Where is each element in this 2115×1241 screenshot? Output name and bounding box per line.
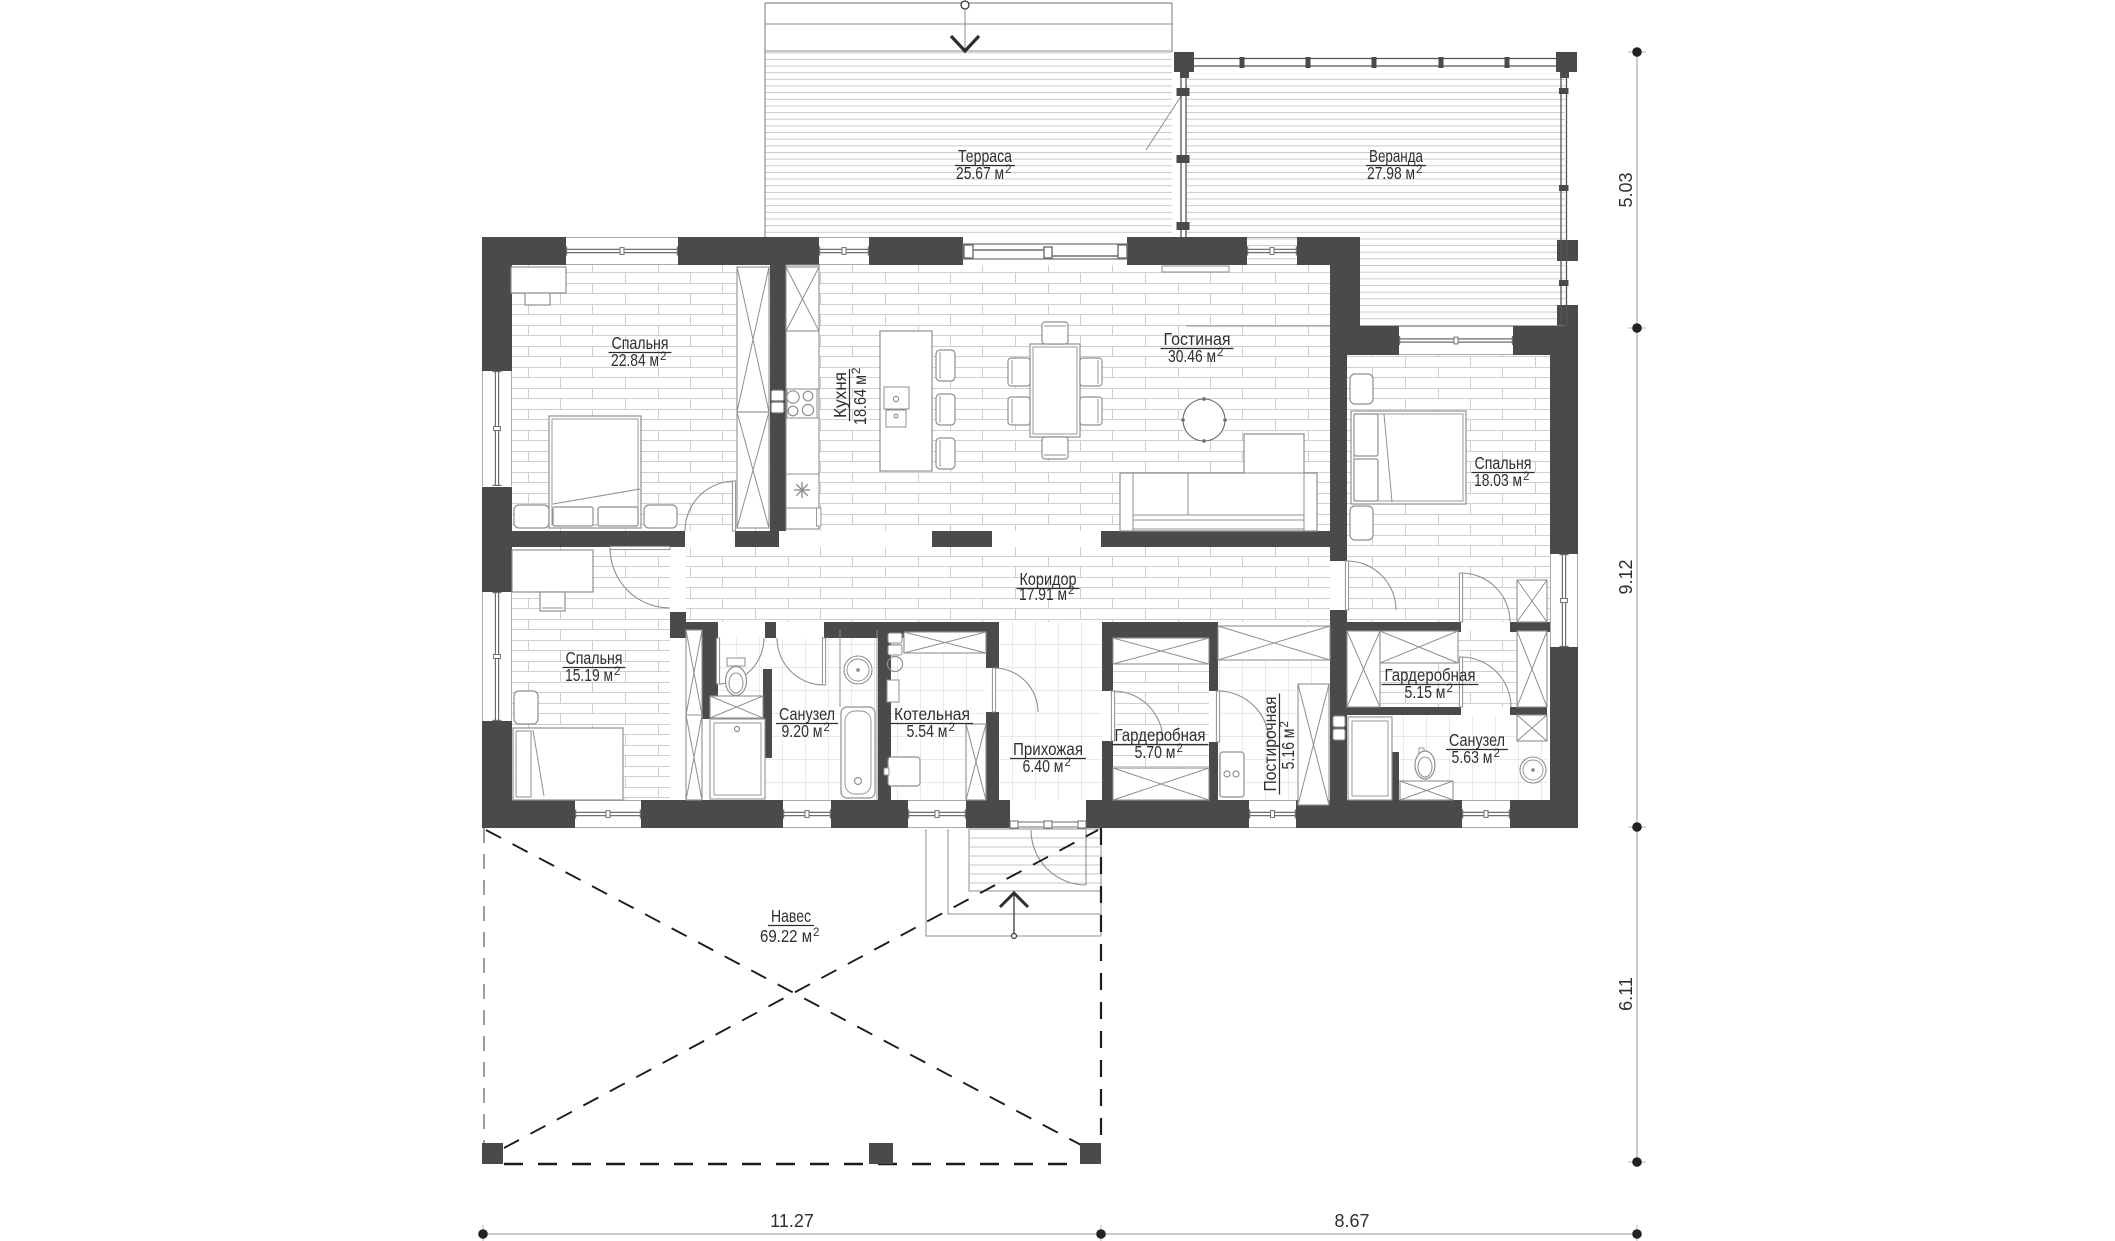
svg-text:Постирочная: Постирочная [1260,697,1280,792]
svg-text:2: 2 [660,351,666,363]
svg-text:5.16 м: 5.16 м [1278,729,1298,770]
svg-text:5.70 м: 5.70 м [1135,742,1176,762]
svg-text:2: 2 [1217,347,1223,359]
svg-text:2: 2 [1065,757,1071,769]
svg-text:2: 2 [1447,683,1453,695]
svg-text:6.11: 6.11 [1616,977,1636,1011]
svg-text:15.19 м: 15.19 м [565,665,613,685]
svg-text:17.91 м: 17.91 м [1019,584,1067,604]
svg-text:5.63 м: 5.63 м [1452,747,1493,767]
svg-text:2: 2 [851,368,863,374]
svg-text:69.22 м: 69.22 м [760,926,812,946]
svg-text:18.64 м: 18.64 м [850,375,870,425]
svg-text:2: 2 [1177,743,1183,755]
svg-text:2: 2 [614,666,620,678]
svg-text:Навес: Навес [771,906,811,926]
svg-text:11.27: 11.27 [770,1211,814,1231]
svg-text:25.67 м: 25.67 м [956,163,1004,183]
svg-text:9.12: 9.12 [1616,559,1636,594]
svg-text:27.98 м: 27.98 м [1367,163,1415,183]
svg-text:9.20 м: 9.20 м [782,721,823,741]
svg-text:8.67: 8.67 [1334,1211,1369,1231]
svg-text:2: 2 [1416,164,1422,176]
svg-text:Кухня: Кухня [830,372,850,418]
svg-text:6.40 м: 6.40 м [1023,756,1064,776]
svg-text:2: 2 [813,927,819,939]
svg-text:5.03: 5.03 [1616,172,1636,207]
svg-text:2: 2 [1523,471,1529,483]
svg-text:2: 2 [949,722,955,734]
svg-text:30.46 м: 30.46 м [1168,346,1216,366]
svg-text:5.15 м: 5.15 м [1405,682,1446,702]
svg-text:2: 2 [1005,164,1011,176]
svg-text:22.84 м: 22.84 м [611,350,659,370]
svg-text:2: 2 [1279,721,1291,727]
svg-text:2: 2 [1494,748,1500,760]
svg-text:18.03 м: 18.03 м [1474,470,1522,490]
svg-text:2: 2 [1068,585,1074,597]
svg-text:5.54 м: 5.54 м [907,721,948,741]
svg-text:2: 2 [824,722,830,734]
